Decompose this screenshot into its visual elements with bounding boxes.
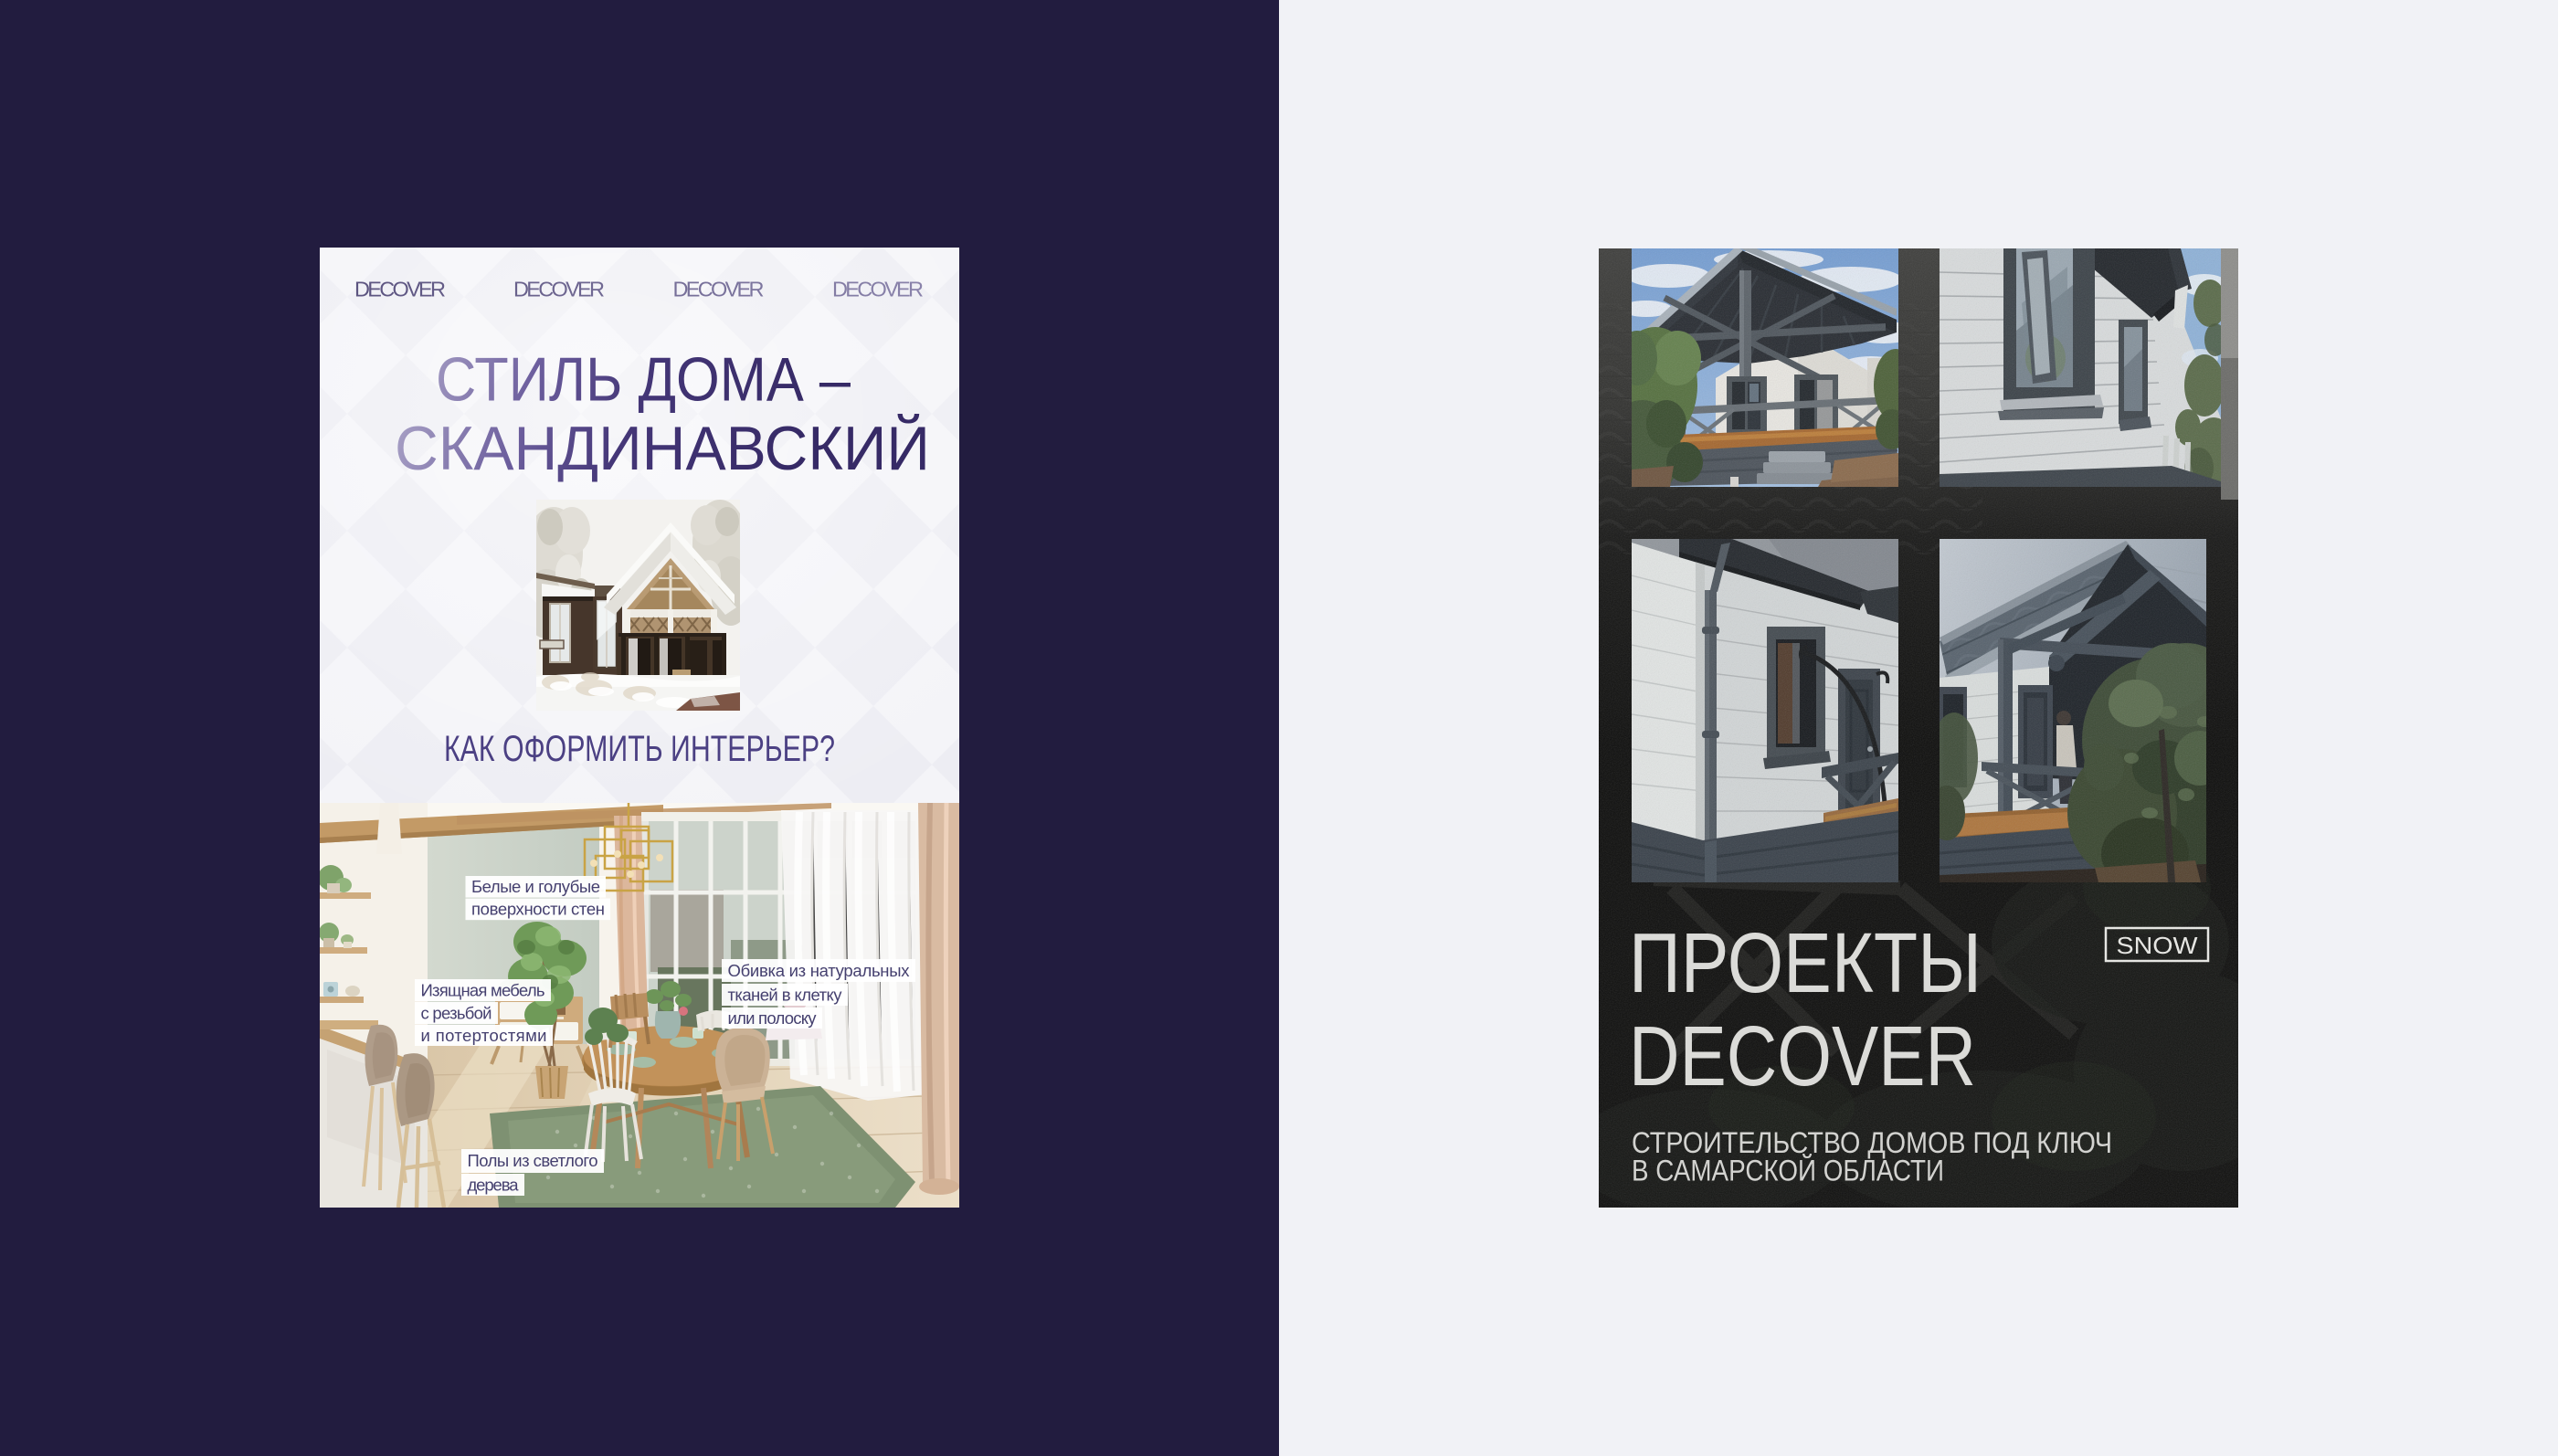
svg-text:DECOVER: DECOVER: [1629, 1008, 1976, 1103]
svg-text:КАК ОФОРМИТЬ ИНТЕРЬЕР?: КАК ОФОРМИТЬ ИНТЕРЬЕР?: [444, 729, 835, 769]
svg-text:В САМАРСКОЙ ОБЛАСТИ: В САМАРСКОЙ ОБЛАСТИ: [1632, 1155, 1944, 1187]
svg-text:DECOVER: DECOVER: [673, 278, 766, 301]
svg-text:СТИЛЬ ДОМА –: СТИЛЬ ДОМА –: [436, 345, 851, 415]
svg-text:DECOVER: DECOVER: [513, 278, 606, 301]
svg-text:ПРОЕКТЫ: ПРОЕКТЫ: [1629, 915, 1982, 1010]
svg-text:DECOVER: DECOVER: [832, 278, 925, 301]
svg-text:Белые и голубые: Белые и голубые: [471, 877, 600, 896]
svg-text:дерева: дерева: [468, 1175, 520, 1194]
svg-text:поверхности стен: поверхности стен: [471, 900, 605, 919]
svg-text:и потертостями: и потертостями: [421, 1026, 547, 1045]
svg-text:SNOW: SNOW: [2117, 932, 2198, 959]
svg-text:DECOVER: DECOVER: [354, 278, 447, 301]
svg-text:СКАНДИНАВСКИЙ: СКАНДИНАВСКИЙ: [395, 413, 930, 483]
svg-text:Обивка из натуральных: Обивка из натуральных: [728, 961, 911, 980]
svg-text:Изящная мебель: Изящная мебель: [421, 980, 545, 999]
svg-text:тканей в клетку: тканей в клетку: [728, 985, 843, 1004]
svg-text:с резьбой: с резьбой: [421, 1003, 492, 1022]
svg-text:или полоску: или полоску: [728, 1008, 818, 1028]
svg-text:Полы из светлого: Полы из светлого: [468, 1151, 598, 1170]
